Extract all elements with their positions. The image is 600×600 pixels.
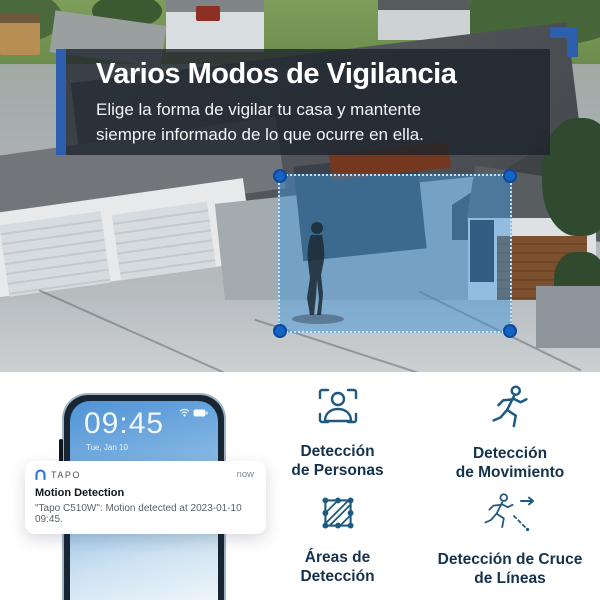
detection-corner-handle [503,169,517,183]
notification-header: TAPO now [35,469,254,480]
feature-label-line1: Detección [260,442,415,461]
detection-corner-handle [503,324,517,338]
tapo-logo-icon [35,469,46,480]
detection-corner-handle [273,324,287,338]
feature-label-line1: Detección de Cruce [418,550,600,569]
feature-detection-areas: Áreas de Detección [260,492,415,586]
feature-line-crossing: Detección de Cruce de Líneas [418,492,600,588]
notification-timestamp: now [237,469,254,480]
feature-label-line2: de Líneas [418,569,600,588]
feature-label-line2: de Personas [260,461,415,480]
banner-title: Varios Modos de Vigilancia [96,58,550,91]
banner-accent-bar [56,49,66,155]
feature-label-line2: de Movimiento [425,463,595,482]
banner-subtitle-line2: siempre informado de lo que ocurre en el… [96,122,550,147]
feature-person-detection: Detección de Personas [260,384,415,480]
shed [0,14,40,55]
feature-motion-detection: Detección de Movimiento [425,384,595,482]
garage-door [0,211,111,296]
corner-bracket-icon [550,27,578,57]
status-bar [179,408,208,417]
notification-app-name: TAPO [51,470,237,480]
banner-subtitle-line1: Elige la forma de vigilar tu casa y mant… [96,97,550,122]
lockscreen-date: Tue, Jan 10 [86,443,128,452]
product-infographic: Varios Modos de Vigilancia Elige la form… [0,0,600,600]
detection-areas-icon [317,492,359,534]
banner: Varios Modos de Vigilancia Elige la form… [66,49,550,155]
garage-door [112,202,216,281]
features-section: 09:45 Tue, Jan 10 [0,372,600,600]
truck [196,6,220,21]
walking-person-silhouette [300,220,336,320]
tree [542,118,600,236]
notification-card[interactable]: TAPO now Motion Detection "Tapo C510W": … [25,461,266,534]
motion-detection-icon [490,384,530,430]
wifi-icon [179,408,190,417]
battery-icon [193,409,208,417]
feature-label-line1: Áreas de [260,548,415,567]
gravel [536,286,600,348]
detection-corner-handle [273,169,287,183]
detection-zone-overlay [278,174,512,333]
feature-label-line2: Detección [260,567,415,586]
feature-label-line1: Detección [425,444,595,463]
line-crossing-icon [483,492,537,536]
notification-body: "Tapo C510W": Motion detected at 2023-01… [35,503,254,525]
notification-title: Motion Detection [35,487,254,499]
building [378,0,470,40]
person-detection-icon [314,384,362,428]
lockscreen-time: 09:45 [84,407,164,441]
